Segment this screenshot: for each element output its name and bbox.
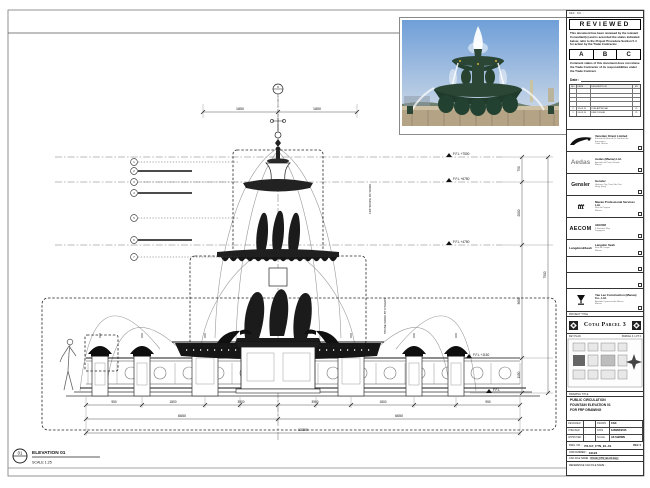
banner-ornament-left [569, 321, 578, 330]
date-label: Date : [570, 78, 579, 82]
title-block: REF. NO. : REVIEWED This document has be… [566, 10, 644, 476]
stamp-header: REF. NO. : [567, 11, 643, 18]
dim-b1: 950 [111, 400, 117, 404]
level-6750: F.F.L +6750 [453, 177, 470, 181]
langdon-seah-logo: Langdon&Seah [569, 246, 592, 250]
drawing-sheet: 1 2 3 4 5 6 7 8 FRP SCOPE OF WORK STONE … [0, 0, 650, 488]
designed-label: DESIGNED [567, 421, 584, 428]
consultant-row-aedas: Aedas Aedas (Macau) Ltd. Avenida da Prai… [567, 152, 643, 174]
ref-file-label: REFERENCE CAD FILE NAME : [569, 464, 606, 467]
dim-r2: 2000 [517, 209, 521, 216]
rev-col-by: BY [633, 85, 640, 88]
date-line [581, 78, 640, 82]
consultant-checkbox [638, 234, 642, 238]
level-ground: F.F.L [493, 388, 500, 392]
dwg-rev: REV. 0 [633, 444, 641, 447]
reviewed-title: REVIEWED [569, 19, 641, 30]
level-1150: F.F.L +1150 [473, 353, 489, 357]
consultant-checkbox [638, 168, 642, 172]
date-field-label: DATE [596, 428, 610, 435]
gensler-logo: Gensler [571, 182, 590, 188]
consultant-checkbox [638, 251, 642, 255]
dim-b6: 950 [485, 400, 491, 404]
consultant-row-mps: ttt Macau Professional Services Ltd. Rua… [567, 196, 643, 218]
dim-r3: 3600 [517, 297, 521, 304]
dim-r4: 1150 [517, 371, 521, 378]
stone-note: STONE WORK BY OTHERS [383, 298, 387, 334]
job-number-label: JOB NUMBER : [569, 451, 587, 454]
cad-file-name: P3-GF_FTN_EL-01.dwg [590, 457, 619, 460]
stamp-date-row: Date : [568, 76, 642, 83]
elevation-scale: SCALE 1:25 [32, 461, 52, 465]
photo-obelisk [530, 80, 533, 102]
dimensions: 1850 1850 750 2000 3600 1150 7500 F.F.L … [84, 104, 553, 436]
reference-photo [399, 17, 568, 135]
key-plan-site [573, 355, 585, 366]
dwg-number-label: DWG. NO. : [569, 444, 582, 447]
consultant-checkbox [638, 267, 642, 271]
drawn-label: DRAWN [596, 421, 610, 428]
drawing-title-line3: FOR FRP DRAWING [570, 408, 643, 413]
consultant-checkbox [638, 306, 642, 310]
stamp-paragraph-2: Comment status of this document does not… [568, 60, 642, 75]
elevation-bubble: 01 [18, 451, 23, 456]
elevation-label: ELEVATION 01 [32, 450, 66, 456]
dim-top-right: 1850 [313, 107, 321, 111]
mps-logo: ttt [578, 202, 584, 211]
dwg-number: P3-GF_FTN_EL-01 [584, 444, 611, 448]
dim-b5: 1800 [379, 400, 386, 404]
revision-row: 126.03.15FIRST ISSUEYL [570, 111, 640, 115]
elevation-title: 01 ELEVATION 01 SCALE 1:25 [13, 449, 100, 465]
aedas-logo: Aedas [571, 159, 591, 166]
project-name: Cotai Parcel 3 [584, 322, 626, 328]
grade-c: C [617, 50, 640, 59]
dim-b2: 1800 [169, 400, 176, 404]
aecom-logo: AECOM [570, 226, 592, 232]
date-value: 12/MAR/2015 [610, 428, 643, 435]
consultant-row-yaulee: Yau Lee Construction (Macau) Co., Ltd. A… [567, 289, 643, 312]
dim-top-left: 1850 [236, 107, 244, 111]
banner-ornament-right [632, 321, 641, 330]
stamp-paragraph-1: This document has been reviewed by the r… [568, 30, 642, 49]
designed-value [584, 421, 596, 428]
checked-label: CHECKED [567, 428, 584, 435]
consultant-row-empty-2 [567, 273, 643, 289]
consultant-row-gensler: Gensler Gensler Harbour City, Tsim Sha T… [567, 174, 643, 196]
yaulee-logo-icon [575, 294, 587, 306]
dim-half-right: 6650 [395, 414, 403, 418]
cad-file-label: CAD FILE NAME : [569, 457, 590, 460]
frp-note: FRP SCOPE OF WORK [368, 184, 372, 214]
consultant-checkbox [638, 146, 642, 150]
grade-b: B [594, 50, 618, 59]
key-plan-map [567, 338, 643, 388]
review-grades: A B C [569, 49, 641, 60]
dim-b3: 3900 [237, 400, 244, 404]
approved-label: APPROVED [567, 435, 584, 442]
scale-label: SCALE [596, 435, 610, 442]
revision-table: NO. DATE DESCRIPTION BY 210.04.15FOR APP… [569, 84, 641, 117]
grade-a: A [570, 50, 594, 59]
consultant-checkbox [638, 283, 642, 287]
key-plan: KEY PLAN PARCEL 3, LOT 2 [567, 334, 643, 392]
consultant-row-aecom: AECOM AECOM 8 Shenton Way Singapore [567, 218, 643, 240]
rev-col-no: NO. [570, 85, 577, 88]
drawn-value: CAD [610, 421, 643, 428]
dim-r1: 750 [517, 166, 521, 172]
fountain-structure [172, 118, 384, 393]
project-banner: Cotai Parcel 3 [567, 317, 643, 334]
drawing-title: PUBLIC CIRCULATION FOUNTAIN ELEVATION 01… [567, 397, 643, 421]
checked-value: - [584, 428, 596, 435]
consultant-checkbox [638, 212, 642, 216]
dim-b4: 3900 [311, 400, 318, 404]
scale-value: AS SHOWN [610, 435, 643, 442]
job-number: 31123 [589, 451, 597, 455]
consultant-checkbox [638, 190, 642, 194]
ref-file-row: REFERENCE CAD FILE NAME : [567, 462, 643, 468]
drawing-fields: DESIGNED DRAWN CAD CHECKED - DATE 12/MAR… [567, 421, 643, 442]
rev-col-desc: DESCRIPTION [591, 85, 633, 88]
level-7500: F.F.L +7500 [453, 152, 470, 156]
rev-col-date: DATE [577, 85, 591, 88]
dim-r-total: 7500 [543, 271, 547, 278]
dim-half-left: 6650 [178, 414, 186, 418]
scale-figure [60, 339, 76, 390]
consultant-row-empty-1 [567, 257, 643, 273]
consultant-row-langdon: Langdon&Seah Langdon Seah Rua do Campo M… [567, 240, 643, 257]
dim-total: 13300 [298, 428, 308, 432]
venetian-logo-icon [569, 136, 593, 146]
photo-image [402, 20, 559, 126]
review-stamp: REVIEWED This document has been reviewed… [567, 18, 643, 130]
consultant-row-venetian: Venetian Orient Limited Estrada da Baia … [567, 130, 643, 152]
dwg-number-row: DWG. NO. : P3-GF_FTN_EL-01 REV. 0 [567, 442, 643, 450]
level-4750: F.F.L +4750 [453, 240, 470, 244]
approved-value: - [584, 435, 596, 442]
